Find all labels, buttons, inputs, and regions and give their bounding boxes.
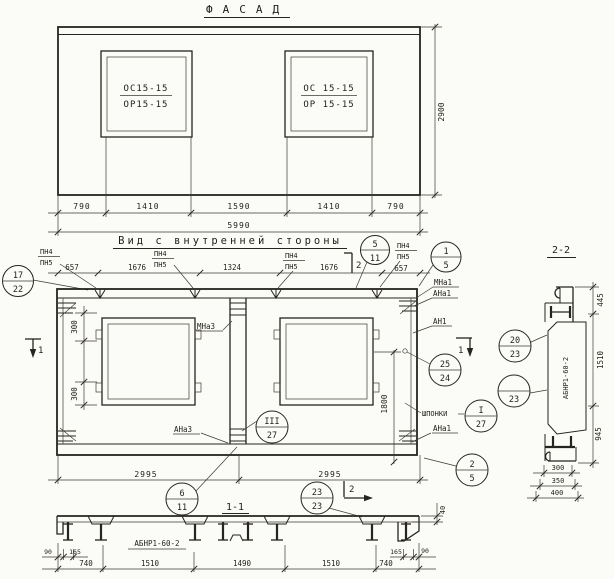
balloon-bottom: 5 [443,261,448,271]
svg-text:АБНР1-60-2: АБНР1-60-2 [134,539,179,548]
dim-1590: 1590 [227,202,250,211]
section-2-2-view: 2-2 АБНР1-60-2 445 1510 945 [527,245,605,502]
facade-height-dimension: 2900 [420,24,446,198]
balloon-top: 25 [440,360,450,370]
svg-text:МНа3: МНа3 [197,322,215,331]
dim-1676: 1676 [128,263,147,272]
balloon-top: 2 [469,460,474,470]
inner-window-1 [96,318,201,405]
label-an1: АН1 [413,317,452,333]
dim-40: 40 [439,506,447,514]
dim-300: 300 [552,464,565,472]
rib-t-1 [88,516,114,540]
inner-window-2 [274,318,379,405]
section-mark-1-right: 1 [456,338,473,357]
dim-740-left: 740 [79,559,93,568]
pn-bottom: ПН5 [154,261,167,269]
dim-350: 350 [552,477,565,485]
balloon-III-27: III 27 [242,411,288,443]
pn-top: ПН4 [40,248,53,256]
balloon-bottom: 22 [13,285,23,295]
corner-bracket-tr [399,301,416,314]
center-mullion [230,298,246,444]
balloon-top: III [264,417,279,427]
corner-bracket-br [399,429,416,441]
inner-view: Вид с внутренней стороны ПН4 ПН5 ПН4 ПН5… [3,235,548,517]
section-mark-label: 1 [458,346,463,356]
dim-1800: 1800 [380,394,389,413]
label-ana3: АНа3 [173,425,228,443]
svg-text:МНа1: МНа1 [434,278,452,287]
facade-title: ФАСАД [206,3,289,16]
dim-300-top: 300 [70,320,79,334]
pn-bottom: ПН5 [40,259,53,267]
balloon-I-27: I 27 [465,400,497,432]
dim-1510-right: 1510 [322,559,341,568]
balloon-2-5: 2 5 [424,454,488,486]
section-mark-2-bottom: 2 [344,481,373,501]
corner-bracket-tl [58,303,76,317]
window-mark-bottom: ОР15-15 [124,100,169,110]
section-mark-label: 2 [349,485,354,495]
section-2-2-title: 2-2 [552,245,570,256]
top-flange [545,287,573,322]
svg-text:АНа1: АНа1 [433,289,451,298]
dim-657b: 657 [394,264,408,273]
dim-90-right: 90 [421,547,429,555]
dim-2995-left: 2995 [134,470,157,479]
center-key-notch [230,535,243,541]
dim-945: 945 [594,427,603,441]
dim-657: 657 [65,263,79,272]
label-ana1-bottom: АНа1 [412,424,458,442]
dim-90-left: 90 [44,548,52,556]
section-1-1-title: 1-1 [226,502,244,513]
section-2-2-bottom-dims: 300 350 400 [527,464,584,502]
section-mark-label: 2 [356,261,361,271]
dim-40-group: 40 [412,503,447,525]
balloon-25-24: 25 24 [403,349,461,386]
balloon-bottom: 24 [440,374,450,384]
section-mark-1-left: 1 [25,339,43,358]
rib-i-3 [243,522,253,540]
dim-1410b: 1410 [317,202,340,211]
corner-bracket-bl [58,428,76,441]
balloon-bottom: 5 [469,474,474,484]
dim-1510: 1510 [596,350,605,369]
pn-top: ПН4 [154,250,167,258]
section-mark-2-top: 2 [344,253,361,273]
dim-400: 400 [551,489,564,497]
balloon-top: I [478,406,483,416]
facade-dim-row: 790 1410 1590 1410 790 5990 [48,137,428,236]
dim-445: 445 [596,293,605,307]
balloon-bottom: 23 [510,350,520,360]
dim-2995-right: 2995 [318,470,341,479]
facade-window-2: ОС 15-15 ОР 15-15 [285,51,373,137]
dim-300-bottom: 300 [70,387,79,401]
pn-bottom: ПН5 [285,263,298,271]
dim-165-left: 165 [69,548,81,556]
pn-label-3: ПН4 ПН5 [278,252,305,288]
section-2-2-label: АБНР1-60-2 [562,357,570,399]
balloon-top: 17 [13,271,23,281]
label-mna3: МНа3 [196,321,232,331]
facade-outline [58,27,420,195]
balloon-bottom: 11 [177,503,187,513]
slab-profile [57,516,419,541]
bottom-flange [545,434,576,461]
dim-740-right: 740 [379,559,393,568]
balloon-top: 5 [372,240,377,250]
balloon-top: 23 [312,488,322,498]
window-mark-top: ОС 15-15 [303,84,354,94]
label-ana1-top: АНа1 [414,289,458,306]
pn-label-2: ПН4 ПН5 [152,250,193,288]
balloon-top: 6 [179,489,184,499]
window-mark-top: ОС15-15 [124,84,169,94]
dim-1490: 1490 [233,559,252,568]
dim-1800-group: 1800 [374,349,401,465]
dim-2900: 2900 [437,102,446,121]
dim-5990: 5990 [227,221,250,230]
section-1-1-view: 1-1 [42,502,447,572]
facade-window-1: ОС15-15 ОР15-15 [101,51,192,137]
svg-text:ШПОНКИ: ШПОНКИ [422,410,447,418]
rib-t-2 [182,516,208,540]
rib-t-4 [359,516,385,540]
label-shponki: ШПОНКИ [405,403,464,418]
section-1-1-label: АБНР1-60-2 [128,539,186,549]
balloon-top: 20 [510,336,520,346]
section-1-1-dims: 90 165 165 90 740 1510 1490 1510 740 [42,543,436,572]
facade-view: ФАСАД ОС15-15 ОР15-15 ОС 15-15 ОР 15-15 … [48,3,446,236]
rib-i-2 [218,522,228,540]
svg-text:АНа1: АНа1 [433,424,451,433]
balloon-top: 1 [443,247,448,257]
dim-1324: 1324 [223,263,242,272]
rib-t-3 [264,516,290,540]
rib-i-1 [63,522,73,540]
svg-text:АН1: АН1 [433,317,447,326]
dim-165-right: 165 [390,548,402,556]
svg-text:АНа3: АНа3 [174,425,192,434]
dim-1410: 1410 [136,202,159,211]
pn-top: ПН4 [397,242,410,250]
dim-790: 790 [73,202,90,211]
pn-top: ПН4 [285,252,298,260]
section-2-2-right-dims: 445 1510 945 [575,282,605,468]
inner-bottom-dims: 2995 2995 [48,455,428,484]
dim-790b: 790 [387,202,404,211]
dim-300-group: 300 300 [70,306,97,410]
drawing-sheet: ФАСАД ОС15-15 ОР15-15 ОС 15-15 ОР 15-15 … [0,0,614,579]
inner-title: Вид с внутренней стороны [118,235,342,247]
balloon-bottom: 27 [476,420,486,430]
inner-top-dims: 657 1676 1324 1676 657 [48,263,430,276]
panel-outline [57,289,417,455]
balloon-bottom: 27 [267,431,277,441]
balloon-bottom: 23 [312,502,322,512]
window-mark-bottom: ОР 15-15 [303,100,354,110]
balloon-bottom: 23 [509,395,519,405]
balloon-20-23: 20 23 [499,330,547,362]
pn-bottom: ПН5 [397,253,410,261]
balloon-bottom: 11 [370,254,380,264]
dim-1676b: 1676 [320,263,339,272]
section-mark-label: 1 [38,346,43,356]
dim-1510-left: 1510 [141,559,160,568]
balloon-22-23: 23 [498,375,547,407]
drawing-canvas: ФАСАД ОС15-15 ОР15-15 ОС 15-15 ОР 15-15 … [0,0,614,579]
